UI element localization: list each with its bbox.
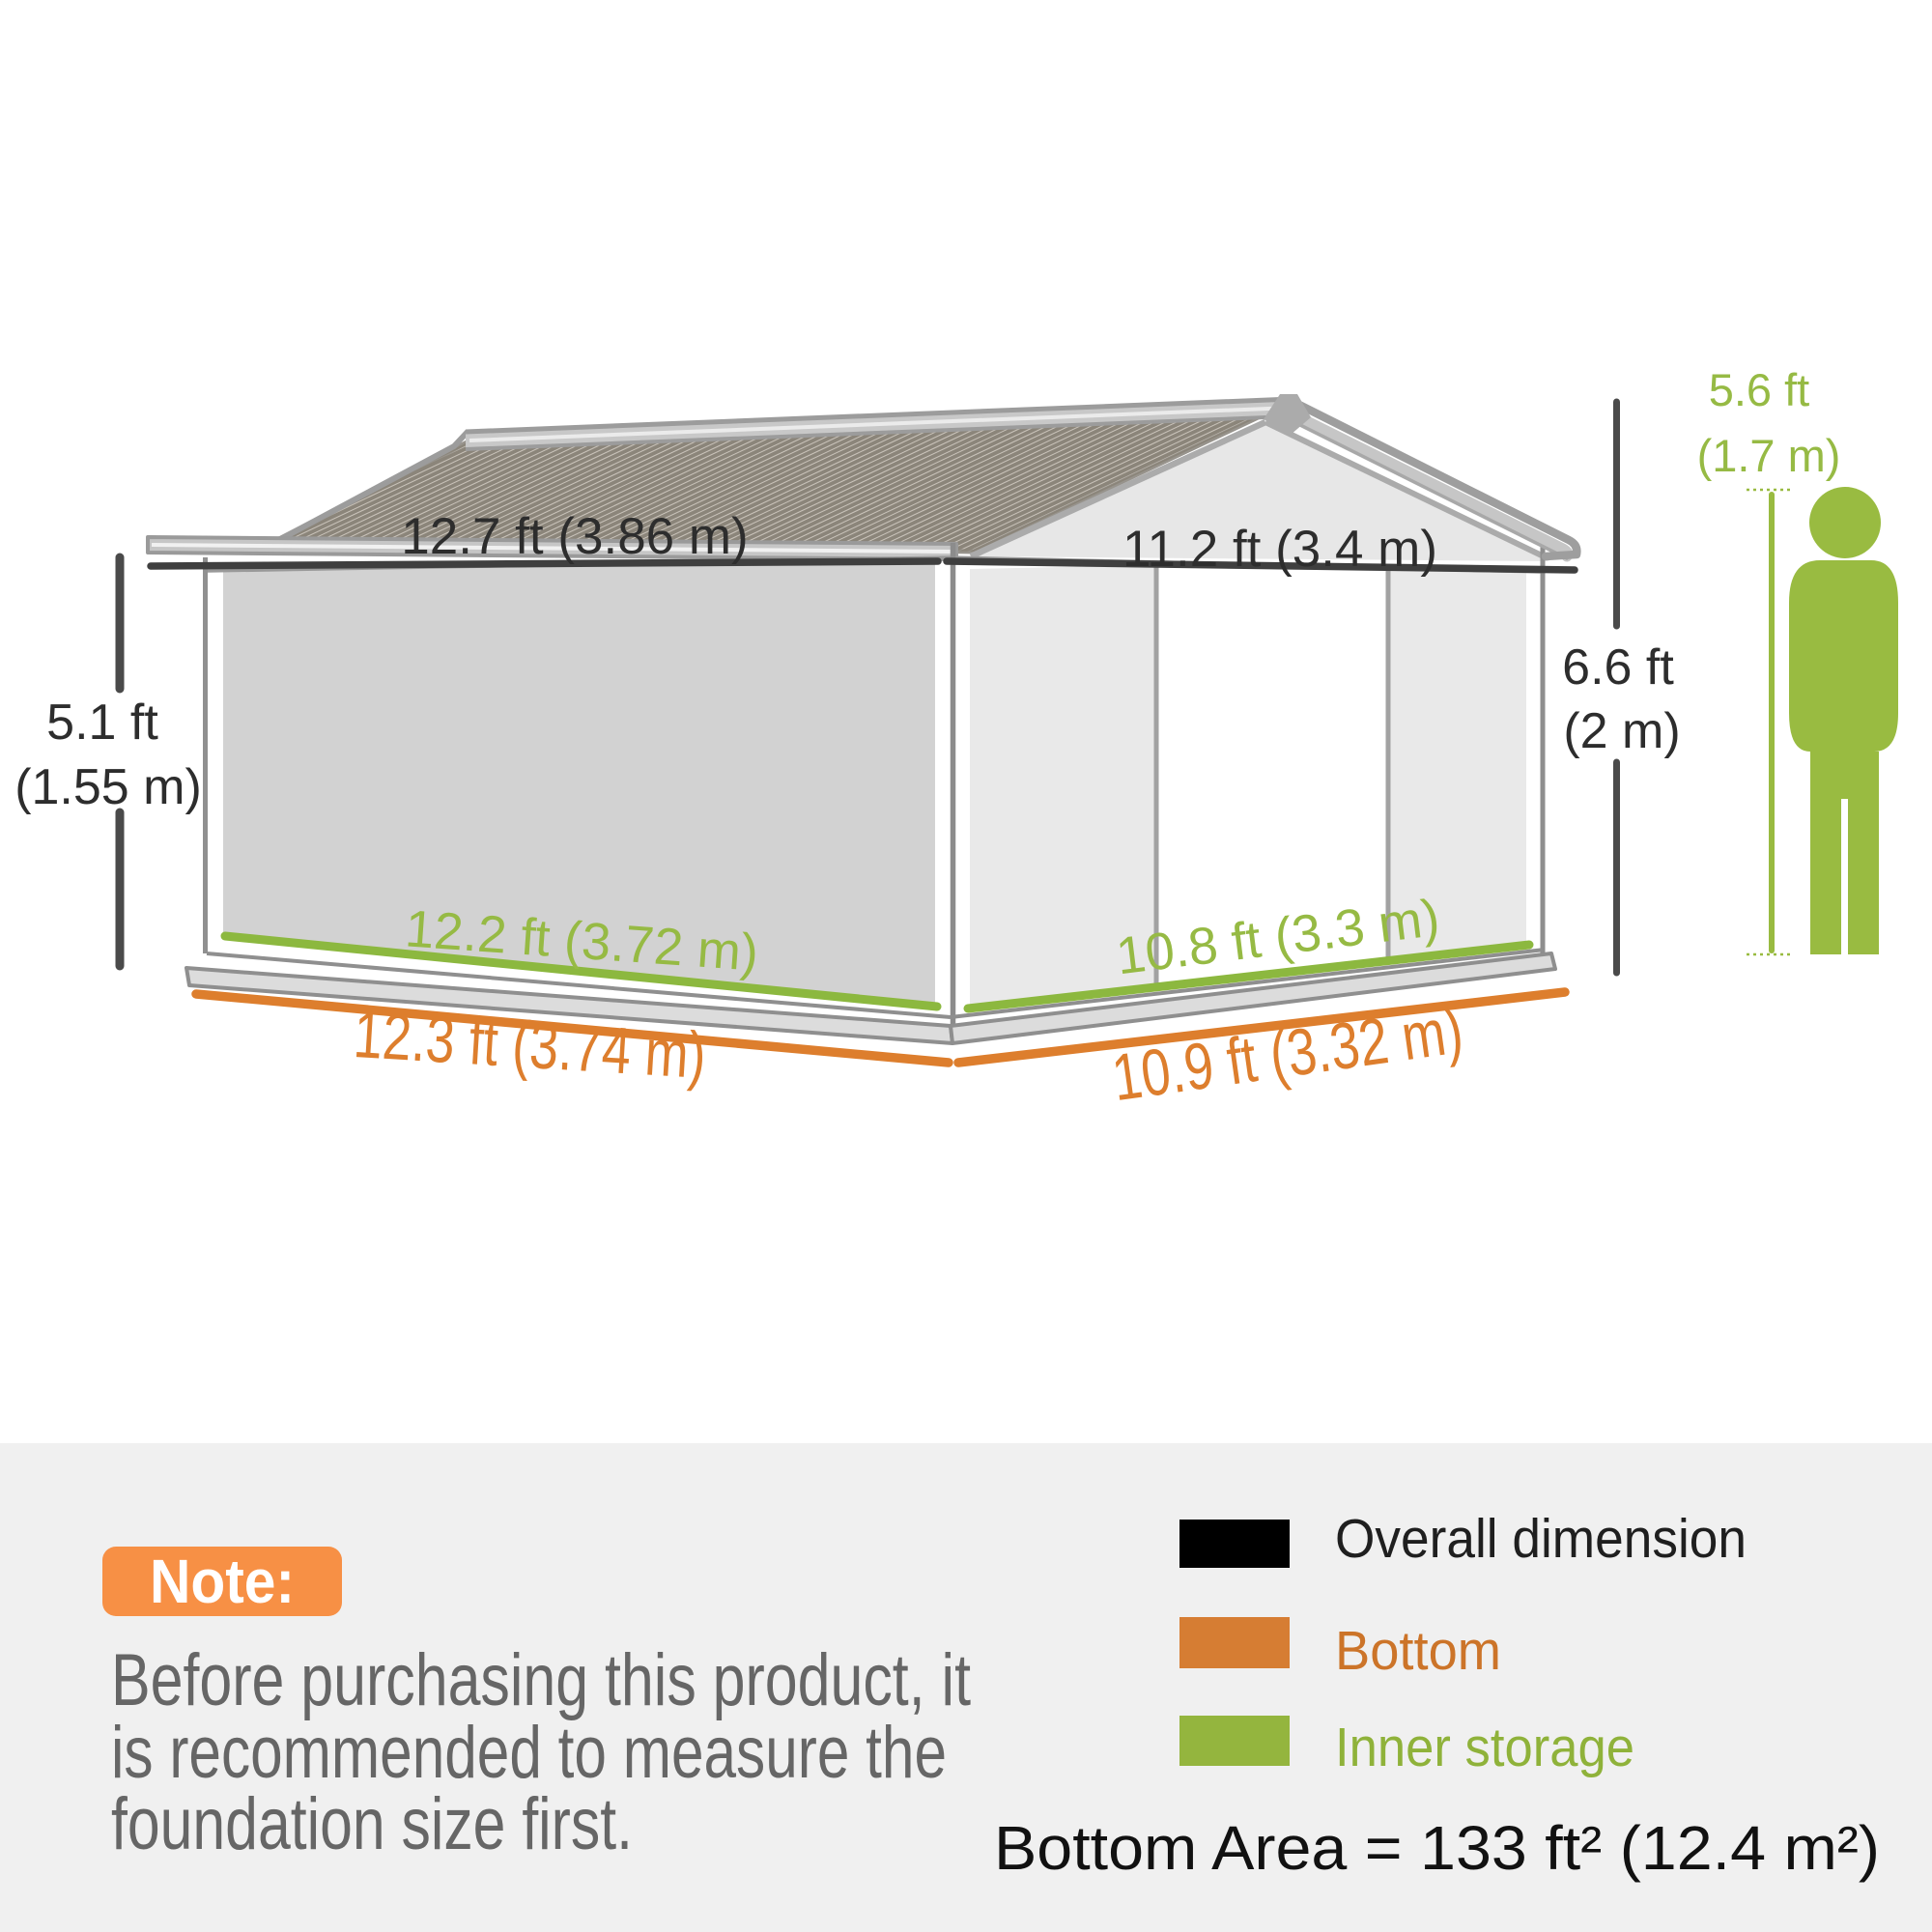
svg-text:Note:: Note: <box>150 1547 295 1616</box>
svg-text:12.7 ft (3.86 m): 12.7 ft (3.86 m) <box>401 508 748 565</box>
svg-text:11.2 ft (3.4 m): 11.2 ft (3.4 m) <box>1122 521 1437 578</box>
svg-text:5.6 ft: 5.6 ft <box>1709 364 1810 415</box>
svg-text:foundation size first.: foundation size first. <box>111 1783 633 1865</box>
svg-text:Inner storage: Inner storage <box>1335 1717 1634 1778</box>
svg-text:Bottom Area = 133 ft² (12.4 m²: Bottom Area = 133 ft² (12.4 m²) <box>994 1813 1880 1883</box>
svg-text:Bottom: Bottom <box>1335 1620 1501 1682</box>
svg-text:5.1 ft: 5.1 ft <box>46 695 158 751</box>
svg-text:(1.7 m): (1.7 m) <box>1697 430 1841 481</box>
svg-text:(2 m): (2 m) <box>1563 703 1680 759</box>
svg-text:(1.55 m): (1.55 m) <box>14 759 202 815</box>
svg-text:Overall dimension: Overall dimension <box>1335 1508 1747 1570</box>
svg-text:is recommended to measure the: is recommended to measure the <box>111 1712 947 1794</box>
svg-text:Before purchasing this product: Before purchasing this product, it <box>111 1639 971 1721</box>
svg-text:6.6 ft: 6.6 ft <box>1562 639 1674 696</box>
